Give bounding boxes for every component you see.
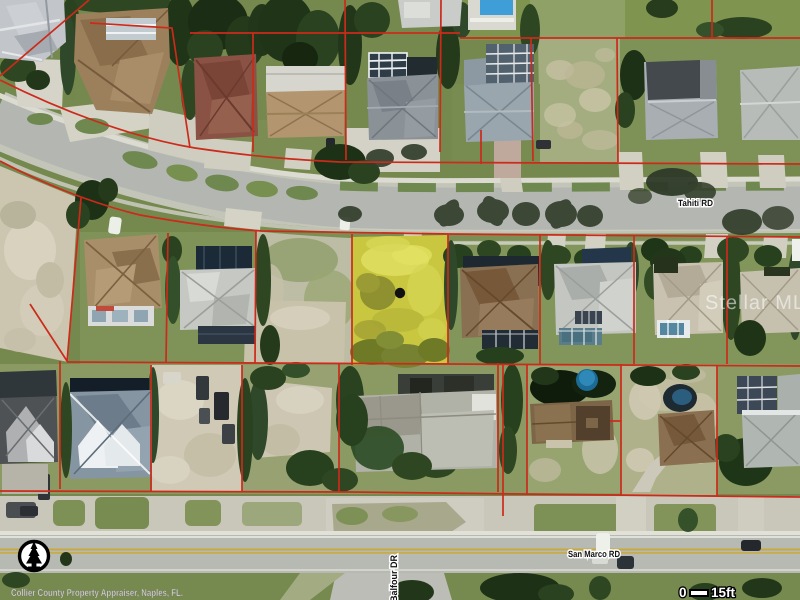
svg-text:Tahiti RD: Tahiti RD (678, 198, 713, 208)
svg-text:Balfour DR: Balfour DR (389, 555, 400, 600)
svg-text:Stellar MLS: Stellar MLS (705, 292, 800, 314)
svg-text:Collier County Property Apprai: Collier County Property Appraiser, Naple… (11, 588, 183, 599)
svg-text:15ft: 15ft (711, 585, 736, 600)
svg-text:0: 0 (679, 585, 687, 600)
svg-text:San Marco RD: San Marco RD (568, 549, 620, 559)
